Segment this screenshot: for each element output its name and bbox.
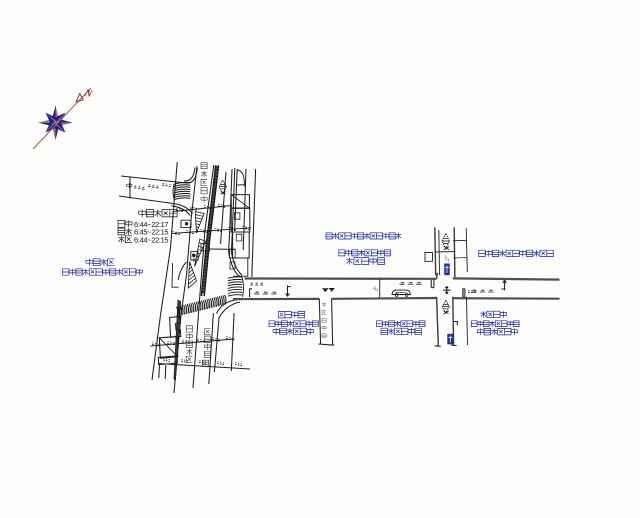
svg-text:6:44~22:15: 6:44~22:15 [134, 235, 168, 244]
